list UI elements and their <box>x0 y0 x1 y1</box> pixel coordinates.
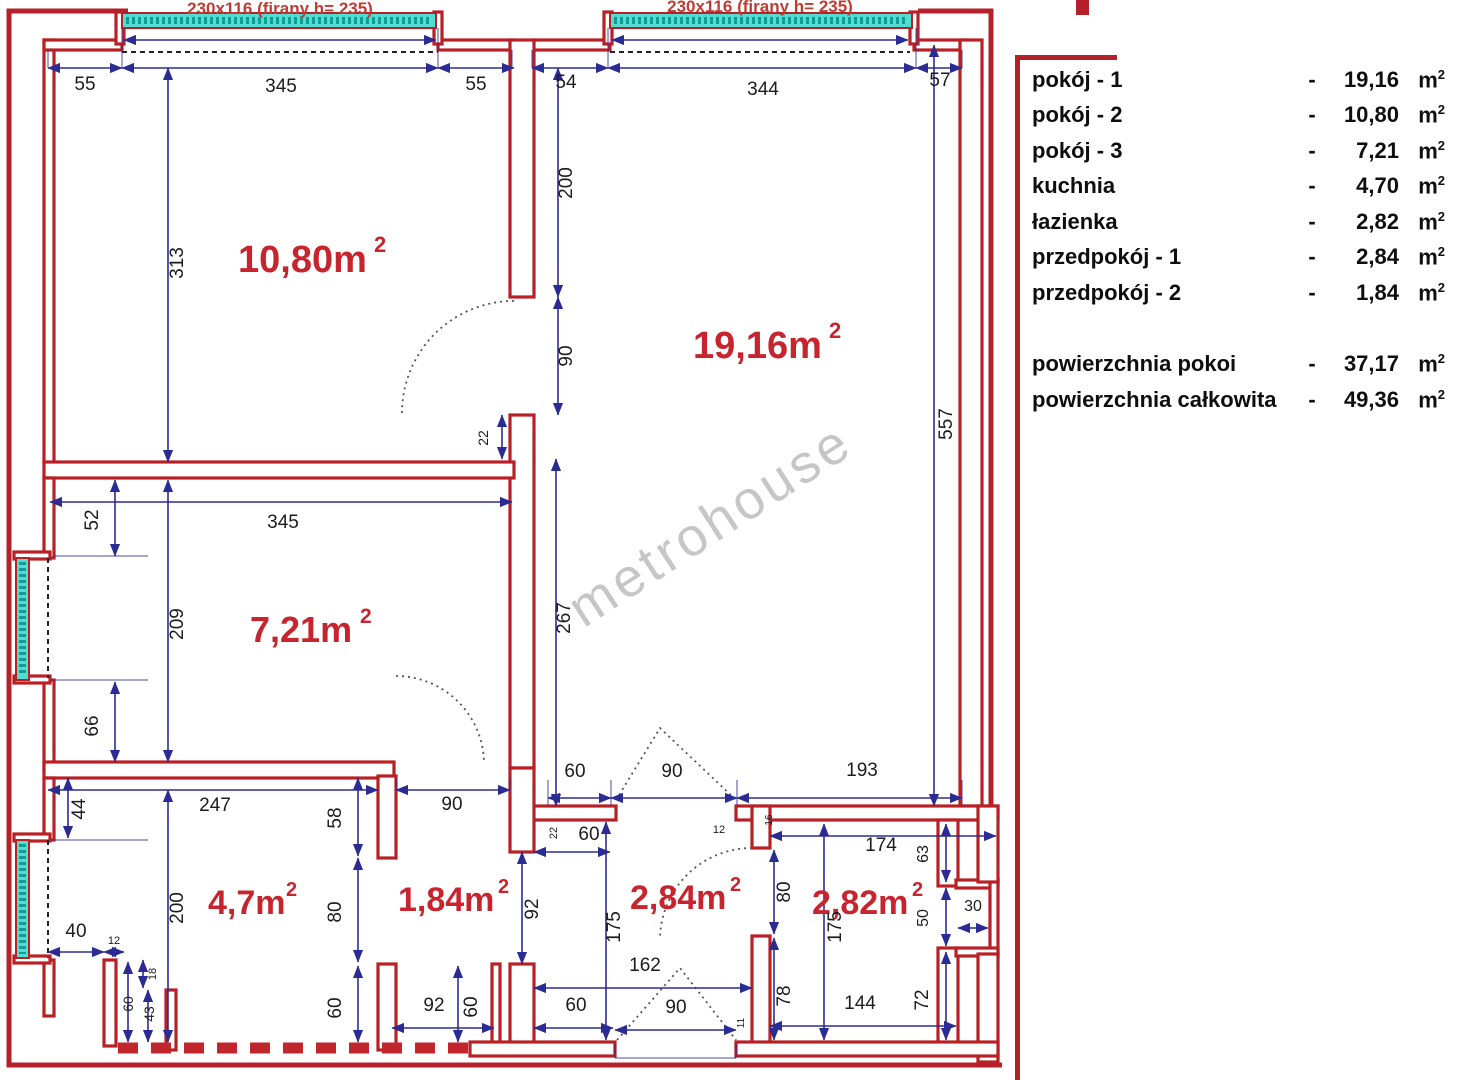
room-label: 1,84m <box>398 881 494 919</box>
dim-label: 90 <box>441 794 462 815</box>
legend-dash: - <box>1299 280 1325 306</box>
dim-label: 72 <box>912 989 933 1010</box>
room-label-sup: 2 <box>498 876 509 898</box>
dim-label: 44 <box>69 798 90 820</box>
dim-label: 60 <box>325 997 346 1018</box>
legend-room-name: pokój - 2 <box>1032 102 1299 128</box>
legend-dash: - <box>1299 138 1325 164</box>
legend-border-horizontal <box>1015 55 1117 60</box>
legend-unit: m2 <box>1399 67 1445 93</box>
legend-total-value: 49,36 <box>1325 387 1399 413</box>
dim-label: 12 <box>108 935 120 947</box>
dim-label: 16 <box>764 814 775 826</box>
legend-row: pokój - 1 - 19,16 m2 <box>1032 62 1445 98</box>
room-label-sup: 2 <box>360 605 372 628</box>
dim-label: 54 <box>555 72 577 93</box>
dim-label: 80 <box>325 901 346 922</box>
dim-label: 162 <box>629 955 661 976</box>
dim-label: 22 <box>475 430 491 446</box>
legend-area-value: 4,70 <box>1325 173 1399 199</box>
dim-label: 57 <box>929 70 950 91</box>
floor-plan: metrohouse 230x116 (firany h= 235) 230x1… <box>0 0 1015 1080</box>
legend-area-value: 1,84 <box>1325 280 1399 306</box>
dim-label: 144 <box>844 993 876 1014</box>
legend-area-value: 10,80 <box>1325 102 1399 128</box>
dim-label: 40 <box>65 921 86 942</box>
dim-label: 92 <box>423 995 444 1016</box>
legend-dash: - <box>1299 67 1325 93</box>
room-label: 4,7m <box>208 884 286 922</box>
legend-room-name: przedpokój - 1 <box>1032 244 1299 270</box>
dim-label: 12 <box>713 824 725 836</box>
dim-label: 60 <box>565 995 586 1016</box>
legend-dash: - <box>1299 351 1325 377</box>
legend-unit: m2 <box>1399 173 1445 199</box>
legend-room-name: pokój - 1 <box>1032 67 1299 93</box>
dim-label: 80 <box>774 881 795 902</box>
dim-label: 313 <box>167 247 188 279</box>
door-arc-room3 <box>396 676 484 762</box>
legend-total-row: powierzchnia pokoi - 37,17 m2 <box>1032 347 1445 383</box>
legend-area-value: 19,16 <box>1325 67 1399 93</box>
legend-dash: - <box>1299 173 1325 199</box>
legend-unit: m2 <box>1399 244 1445 270</box>
dim-label: 247 <box>199 795 231 816</box>
dim-label: 174 <box>865 835 897 856</box>
dim-label: 55 <box>74 74 95 95</box>
room-label: 10,80m <box>238 239 367 281</box>
dim-label: 18 <box>147 968 159 980</box>
legend-unit: m2 <box>1399 280 1445 306</box>
dim-label: 92 <box>522 898 543 919</box>
legend-total-name: powierzchnia całkowita <box>1032 387 1299 413</box>
legend-dash: - <box>1299 387 1325 413</box>
window-label-right: 230x116 (firany h= 235) <box>667 0 853 16</box>
window-labels: 230x116 (firany h= 235) 230x116 (firany … <box>187 0 853 18</box>
room-label-sup: 2 <box>730 874 741 896</box>
dim-label: 11 <box>736 1017 747 1028</box>
dim-label: 344 <box>747 79 779 100</box>
legend-unit: m2 <box>1399 351 1445 377</box>
dim-label: 22 <box>548 827 560 839</box>
room-label-sup: 2 <box>829 318 841 343</box>
dim-label: 557 <box>936 408 957 440</box>
legend-total-row: powierzchnia całkowita - 49,36 m2 <box>1032 382 1445 418</box>
room-label-sup: 2 <box>912 879 923 901</box>
legend-border-vertical <box>1015 55 1020 1080</box>
legend-gap <box>1032 311 1445 347</box>
dim-label: 55 <box>465 74 486 95</box>
dim-label: 60 <box>578 824 599 845</box>
dim-label: 30 <box>964 898 982 915</box>
dim-label: 90 <box>665 997 686 1018</box>
legend-total-name: powierzchnia pokoi <box>1032 351 1299 377</box>
legend-row: pokój - 3 - 7,21 m2 <box>1032 133 1445 169</box>
legend-unit: m2 <box>1399 138 1445 164</box>
legend-dash: - <box>1299 244 1325 270</box>
watermark: metrohouse <box>558 411 863 638</box>
room-label-sup: 2 <box>374 232 386 257</box>
legend-total-value: 37,17 <box>1325 351 1399 377</box>
room-label: 19,16m <box>693 325 822 367</box>
dim-label: 175 <box>604 911 625 943</box>
dim-label: 78 <box>774 985 795 1006</box>
legend-room-name: przedpokój - 2 <box>1032 280 1299 306</box>
dim-label: 50 <box>915 909 932 927</box>
dim-label: 200 <box>556 167 577 199</box>
legend-row: łazienka - 2,82 m2 <box>1032 204 1445 240</box>
legend-unit: m2 <box>1399 102 1445 128</box>
legend-area-value: 7,21 <box>1325 138 1399 164</box>
dim-label: 175 <box>825 911 846 943</box>
dim-label: 90 <box>661 761 682 782</box>
room-label-sup: 2 <box>286 879 297 901</box>
legend-panel: pokój - 1 - 19,16 m2 pokój - 2 - 10,80 m… <box>1015 0 1463 1080</box>
dim-label: 345 <box>267 512 299 533</box>
dim-label: 267 <box>554 602 575 634</box>
dim-label: 52 <box>82 509 103 530</box>
legend-room-name: łazienka <box>1032 209 1299 235</box>
dim-label: 60 <box>461 996 482 1017</box>
legend-row: kuchnia - 4,70 m2 <box>1032 169 1445 205</box>
legend-row: pokój - 2 - 10,80 m2 <box>1032 98 1445 134</box>
legend-rows: pokój - 1 - 19,16 m2 pokój - 2 - 10,80 m… <box>1032 62 1445 418</box>
legend-row: przedpokój - 1 - 2,84 m2 <box>1032 240 1445 276</box>
dim-label: 209 <box>167 608 188 640</box>
legend-dash: - <box>1299 102 1325 128</box>
legend-dash: - <box>1299 209 1325 235</box>
legend-row: przedpokój - 2 - 1,84 m2 <box>1032 275 1445 311</box>
window-label-left: 230x116 (firany h= 235) <box>187 0 373 18</box>
dim-label: 63 <box>915 845 932 863</box>
legend-area-value: 2,84 <box>1325 244 1399 270</box>
legend-room-name: kuchnia <box>1032 173 1299 199</box>
dim-label: 66 <box>82 715 103 736</box>
legend-room-name: pokój - 3 <box>1032 138 1299 164</box>
dim-label: 60 <box>564 761 585 782</box>
room-label: 7,21m <box>250 609 352 650</box>
dim-label: 193 <box>846 760 878 781</box>
dim-label: 345 <box>265 76 297 97</box>
door-swings <box>396 301 752 1040</box>
legend-unit: m2 <box>1399 209 1445 235</box>
legend-unit: m2 <box>1399 387 1445 413</box>
room-label: 2,84m <box>630 879 726 917</box>
dim-label: 90 <box>556 345 577 366</box>
legend-area-value: 2,82 <box>1325 209 1399 235</box>
dim-label: 200 <box>167 892 188 924</box>
dim-label: 58 <box>325 807 346 828</box>
dim-label: 60 <box>120 996 136 1012</box>
door-arc-room2 <box>402 301 514 413</box>
dim-label: 43 <box>141 1006 157 1022</box>
